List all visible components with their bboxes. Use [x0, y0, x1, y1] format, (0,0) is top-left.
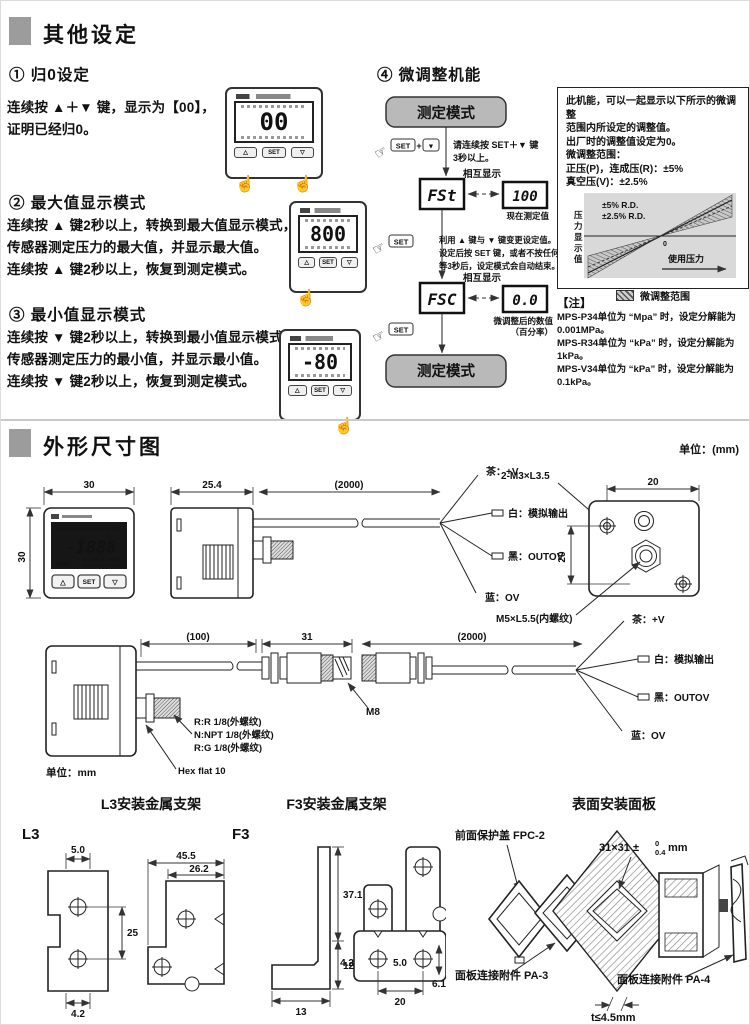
up-button: △ [288, 385, 307, 396]
zero-setting-text: 连续按 ▲＋▼ 键，显示为【00】， 证明已经归0。 [7, 97, 215, 141]
current-value-caption: 现在测定值 [506, 211, 549, 221]
adjusted-value: 0.0 [512, 293, 537, 309]
thickness-label: t≤4.5mm [591, 1012, 636, 1023]
hand-icon: ☝ [296, 288, 316, 308]
l3-dim-5: 5.0 [71, 845, 85, 856]
set-button: SET [319, 257, 336, 268]
lcd-flags-row2: MIN HYS N.O BAR [83, 563, 119, 568]
info-line5: 正压(P)，连成压(R)：±5% [566, 163, 740, 177]
max-mode-text: 连续按 ▲ 键2秒以上，转换到最大值显示模式， 传感器测定压力的最大值，并显示最… [7, 215, 296, 281]
down-button: ▽ [111, 580, 118, 587]
f3-dim-50: 5.0 [393, 958, 407, 969]
svg-text:SET: SET [394, 326, 409, 335]
graph-zero: 0 [663, 241, 667, 248]
thread-option-n: N:NPT 1/8(外螺纹) [194, 729, 274, 741]
display-fsc-value: FSC [428, 290, 457, 309]
press-set-icon: ☞ SET [373, 323, 413, 346]
graph-xlabel: 使用压力 [667, 253, 704, 264]
front-cover-label: 前面保护盖 FPC-2 [455, 828, 545, 842]
mutual-label-1: 相互显示 [463, 168, 502, 180]
device-icon-zero: 00 △ SET ▽ ☝ ☝ [225, 87, 323, 179]
set-button: SET [311, 385, 330, 396]
step1-text-1: 请连续按 SET＋▼ 键 [453, 139, 539, 150]
min-line3: 连续按 ▼ 键2秒以上，恢复到测定模式。 [7, 371, 296, 393]
min-line2: 传感器测定压力的最小值，并显示最小值。 [7, 349, 296, 371]
l3-bracket-title: L3安装金属支架 [56, 794, 246, 814]
lcd-digits: -1888 [65, 538, 116, 558]
brand-logo [290, 336, 350, 341]
l3-dim-455: 45.5 [176, 851, 196, 862]
thread-option-g: R:G 1/8(外螺纹) [194, 742, 262, 754]
dim-cable-length: (2000) [335, 480, 364, 491]
wire-white-label: 白：模拟输出 [654, 653, 714, 666]
dim-cable2: (2000) [458, 632, 487, 643]
device-icon-max: 800 △ SET ▽ ☝ [289, 201, 367, 293]
f3-bracket-title: F3安装金属支架 [244, 794, 429, 814]
up-button: △ [59, 580, 66, 587]
svg-text:SET: SET [396, 142, 411, 151]
wire-black-label: 黑：OUTOV [508, 551, 564, 563]
graph-band25-label: ±2.5% R.D. [602, 211, 645, 221]
set-button: SET [83, 579, 96, 586]
wire-fan: 茶：+V 白：模拟输出 黑：OUTOV 蓝：OV [576, 613, 714, 742]
section-title-other-settings: 其他设定 [43, 19, 139, 49]
f3-bracket-drawing: F3 37.1 12.9 13 4.2 5.0 20 6.1 [226, 819, 446, 1019]
info-line6: 真空压(V)：±2.5% [566, 176, 740, 190]
heading-fine-adjust: ④ 微调整机能 [377, 63, 481, 85]
panel-mount-drawing: 前面保护盖 FPC-2 31×31 ± 0 0.4 mm 面板连接附件 PA-3… [449, 809, 749, 1023]
button-row: △ SET ▽ [234, 147, 314, 158]
hand-icon: ☝ [293, 174, 313, 194]
l3-label: L3 [22, 826, 40, 843]
lcd-value: 00 [236, 110, 312, 134]
brand-logo [236, 94, 312, 99]
svg-text:☞: ☞ [373, 326, 388, 346]
max-line3: 连续按 ▲ 键2秒以上，恢复到测定模式。 [7, 259, 296, 281]
section-marker [9, 429, 31, 457]
sensor-body [659, 865, 728, 957]
adjust-range-graph: 压力显示值 0 ±5% R.D. ±2.5% R.D. 使用压力 [566, 190, 742, 282]
mode-box-bottom-label: 测定模式 [417, 362, 475, 380]
step2-text-2: 设定后按 SET 键，或者不按任何键 [439, 248, 561, 258]
section-divider [1, 419, 750, 421]
brand-logo [51, 514, 59, 519]
unit-note-mm: 单位：mm [46, 766, 96, 779]
pa4-clamp [731, 856, 748, 962]
dimension-drawing-row1: 30 30 mmHg inHg PSI BAR kgf kPa -1888 OU… [16, 461, 736, 631]
lcd-value: 800 [300, 224, 356, 244]
info-line4: 微调整范围： [566, 149, 740, 163]
info-line1: 此机能，可以一起显示以下所示的微调整 [566, 95, 740, 122]
zero-line2: 证明已经归0。 [7, 119, 215, 141]
section-marker [9, 17, 31, 45]
note-line1: MPS-P34单位为 “Mpa” 时，设定分解能为0.001MPa。 [557, 311, 749, 337]
lcd-ticks [305, 246, 351, 249]
dimension-drawing-row2: R:R 1/8(外螺纹) N:NPT 1/8(外螺纹) R:G 1/8(外螺纹)… [16, 613, 736, 799]
dim-cable1: (100) [186, 632, 209, 643]
rear-view: 2-M3×L3.5 20 20 M5×L5.5(内螺纹) [496, 471, 699, 625]
info-line2: 范围内所设定的调整值。 [566, 122, 740, 136]
adjusted-caption-2: （百分率） [510, 327, 553, 337]
cutout-sup: 0 [655, 839, 659, 848]
heading-zero-setting: ① 归0设定 [9, 63, 90, 85]
graph-ylabel: 压力显示值 [573, 210, 583, 264]
wire-fan: 茶：+V 白：模拟输出 黑：OUTOV 蓝：OV [440, 465, 568, 604]
button-row: △ SET ▽ [298, 257, 358, 268]
info-line3: 出厂时的调整值设定为0。 [566, 136, 740, 150]
note-title: 【注】 [557, 295, 749, 311]
svg-text:☞: ☞ [373, 142, 390, 162]
datasheet-page: 其他设定 ① 归0设定 连续按 ▲＋▼ 键，显示为【00】， 证明已经归0。 0… [0, 0, 750, 1025]
hand-icon: ☝ [235, 174, 255, 194]
step2-text-1: 利用 ▲ 键与 ▼ 键变更设定值。 [439, 235, 556, 245]
brand-logo [300, 208, 356, 213]
note-block: 【注】 MPS-P34单位为 “Mpa” 时，设定分解能为0.001MPa。 M… [557, 295, 749, 389]
section-title-dimensions: 外形尺寸图 [43, 431, 163, 461]
up-button: △ [234, 147, 257, 158]
wire-black-label: 黑：OUTOV [654, 692, 710, 704]
wire-brown-label: 茶：+V [631, 613, 665, 626]
wire-blue-label: 蓝：OV [485, 591, 520, 604]
front-cover [489, 881, 549, 963]
l3-bracket-drawing: L3 5.0 25 4.2 45.5 26.2 [16, 819, 236, 1019]
step1-text-2: 3秒以上。 [453, 152, 494, 163]
note-line2: MPS-R34单位为 “kPa” 时，设定分解能为1kPa。 [557, 337, 749, 363]
cutout-sub: 0.4 [655, 848, 666, 857]
wire-white-label: 白：模拟输出 [508, 507, 568, 520]
l3-dim-262: 26.2 [189, 864, 209, 875]
lcd-display: 00 [234, 101, 314, 143]
pa3-label: 面板连接附件 PA-3 [455, 968, 548, 982]
dim-front-height: 30 [17, 551, 28, 563]
svg-text:31×31 ±: 31×31 ± [599, 842, 639, 854]
graph-band5-label: ±5% R.D. [602, 200, 638, 210]
lcd-ticks [241, 136, 307, 139]
mode-box-top-label: 测定模式 [417, 104, 475, 122]
display-fst-value: FSt [428, 186, 457, 205]
f3-dim-42: 4.2 [340, 958, 354, 969]
svg-text:SET: SET [394, 238, 409, 247]
heading-max-mode: ② 最大值显示模式 [9, 191, 146, 213]
press-set-down-icon: ☞ SET + ▼ [373, 139, 439, 162]
lcd-ticks [295, 374, 345, 377]
min-mode-text: 连续按 ▼ 键2秒以上，转换到最小值显示模式， 传感器测定压力的最小值，并显示最… [7, 327, 296, 393]
m8-connector: M8 [262, 653, 432, 718]
zero-line1: 连续按 ▲＋▼ 键，显示为【00】， [7, 97, 215, 119]
max-line1: 连续按 ▲ 键2秒以上，转换到最大值显示模式， [7, 215, 296, 237]
thickness-dim: t≤4.5mm [591, 997, 639, 1023]
lcd-display: -80 [288, 343, 352, 381]
svg-text:▼: ▼ [428, 144, 435, 151]
lcd-units-row: mmHg inHg PSI BAR kgf kPa [58, 526, 121, 532]
l3-dim-25: 25 [127, 928, 139, 939]
f3-dim-371: 37.1 [343, 890, 363, 901]
m8-label: M8 [366, 707, 380, 718]
set-button: SET [262, 147, 285, 158]
down-button: ▽ [333, 385, 352, 396]
min-line1: 连续按 ▼ 键2秒以上，转换到最小值显示模式， [7, 327, 296, 349]
unit-note: 单位：(mm) [679, 441, 739, 457]
f3-dim-20: 20 [394, 997, 406, 1008]
dim-rear-width: 20 [647, 477, 659, 488]
side-view: 25.4 (2000) [171, 480, 440, 598]
dim-front-width: 30 [83, 480, 95, 491]
dim-connector: 31 [301, 632, 313, 643]
note-line3: MPS-V34单位为 “kPa” 时，设定分解能为0.1kPa。 [557, 363, 749, 389]
svg-text:+: + [416, 141, 421, 151]
lcd-out-label: OUT [56, 561, 70, 568]
down-button: ▽ [291, 147, 314, 158]
cutout-unit: mm [668, 842, 688, 854]
thread-option-r: R:R 1/8(外螺纹) [194, 716, 262, 728]
button-row: △ SET ▽ [288, 385, 352, 396]
rear-screw-label: 2-M3×L3.5 [501, 471, 550, 482]
wire-blue-label: 蓝：OV [631, 729, 666, 742]
max-line2: 传感器测定压力的最大值，并显示最大值。 [7, 237, 296, 259]
adjusted-caption-1: 微调整后的数值 [492, 316, 553, 326]
mutual-label-2: 相互显示 [463, 272, 502, 284]
up-button: △ [298, 257, 315, 268]
lcd-flags-row1: MAX MIN N.C AUTO [82, 557, 122, 562]
press-set-icon: ☞ SET [373, 235, 413, 258]
f3-dim-13: 13 [295, 1007, 307, 1018]
hex-flat-label: Hex flat 10 [178, 766, 226, 777]
step2-text-3: 等3秒后，设定模式会自动结束。 [438, 261, 560, 271]
heading-min-mode: ③ 最小值显示模式 [9, 303, 146, 325]
lcd-value: -80 [290, 352, 350, 372]
lcd-display: 800 [298, 215, 358, 253]
l3-dim-42: 4.2 [71, 1009, 85, 1019]
front-view: 30 30 mmHg inHg PSI BAR kgf kPa -1888 OU… [17, 480, 134, 598]
fine-adjust-info-box: 此机能，可以一起显示以下所示的微调整 范围内所设定的调整值。 出厂时的调整值设定… [557, 87, 749, 289]
f3-label: F3 [232, 826, 250, 843]
fine-adjust-flowchart: 测定模式 ☞ SET + ▼ 请连续按 SET＋▼ 键 3秒以上。 FSt 相互… [373, 91, 561, 395]
down-button: ▽ [341, 257, 358, 268]
dim-side-body: 25.4 [202, 480, 222, 491]
svg-text:☞: ☞ [373, 238, 388, 258]
f3-dim-61: 6.1 [432, 979, 446, 990]
current-value: 100 [512, 189, 537, 205]
dim-rear-height: 20 [557, 551, 568, 563]
device-icon-min: -80 △ SET ▽ ☝ [279, 329, 361, 421]
pa4-label: 面板连接附件 PA-4 [617, 972, 711, 986]
